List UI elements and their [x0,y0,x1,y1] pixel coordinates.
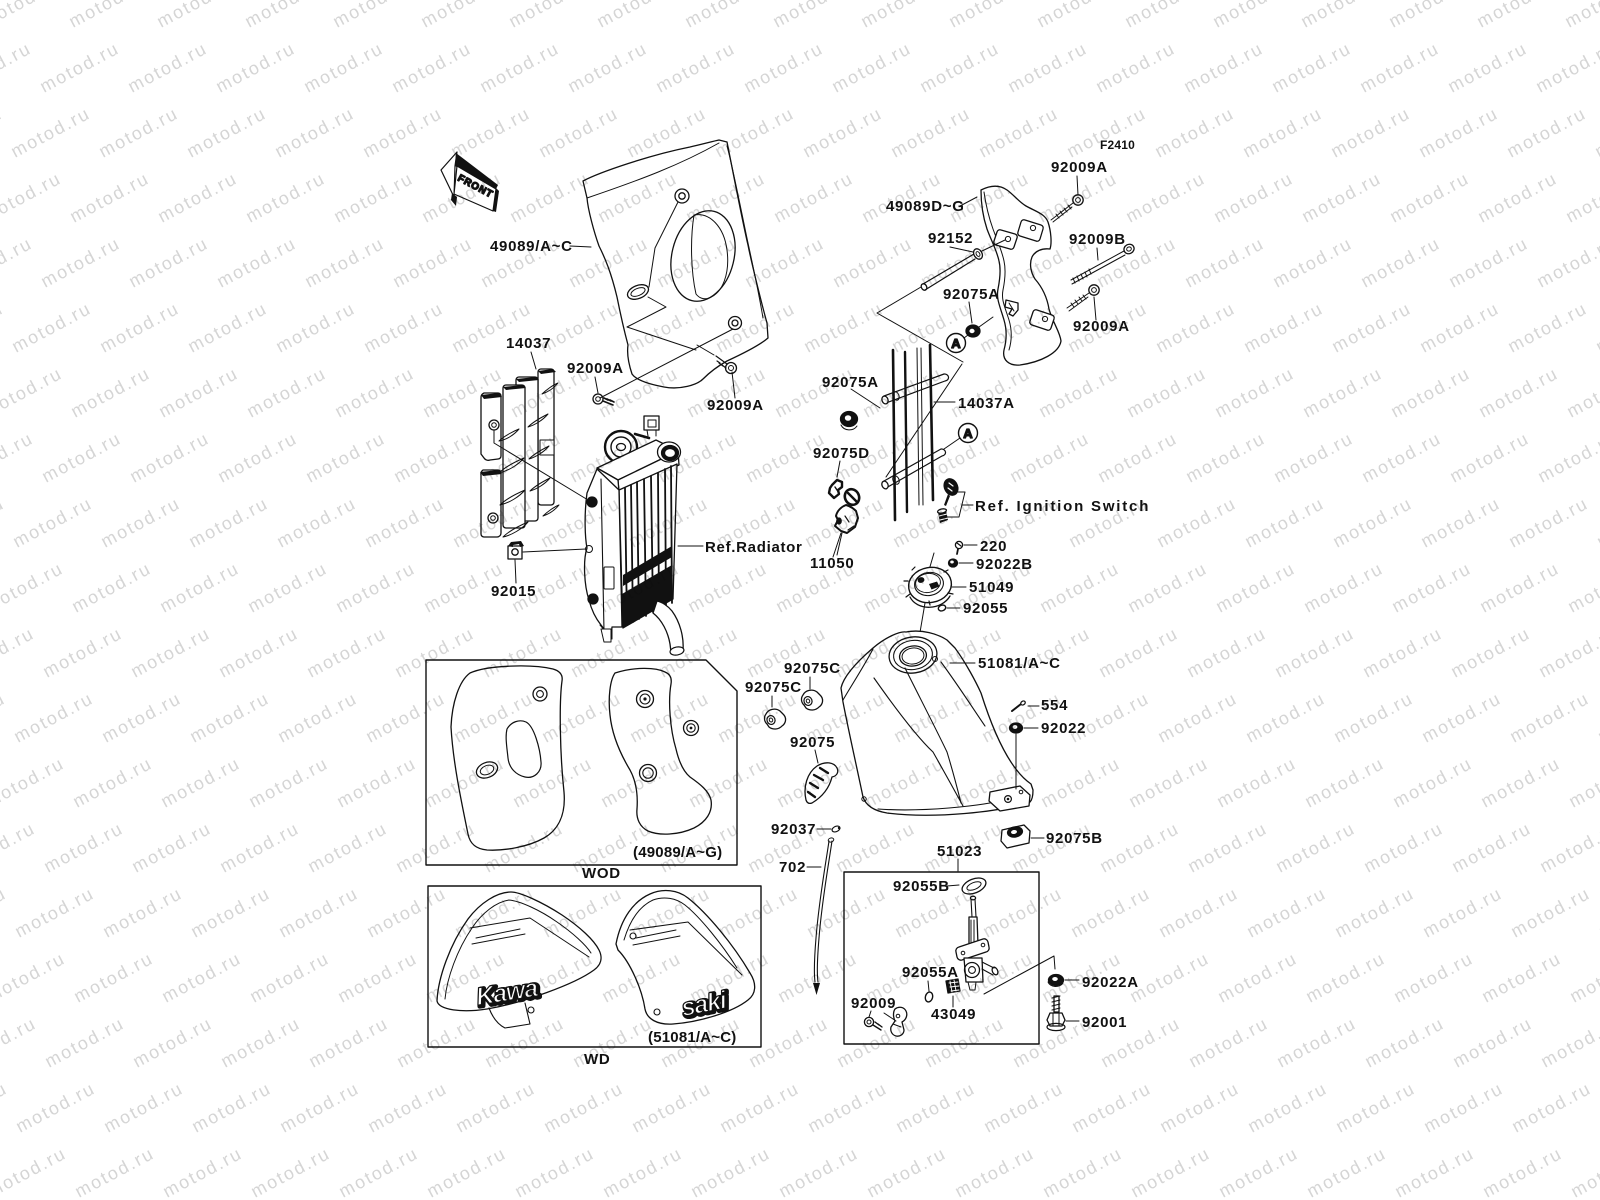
svg-text:92075A: 92075A [943,286,1000,303]
svg-text:A: A [951,336,961,351]
svg-text:92055B: 92055B [893,878,950,895]
svg-text:A: A [963,426,973,441]
svg-text:92152: 92152 [928,230,973,247]
svg-text:43049: 43049 [931,1006,976,1023]
svg-text:702: 702 [779,859,806,876]
